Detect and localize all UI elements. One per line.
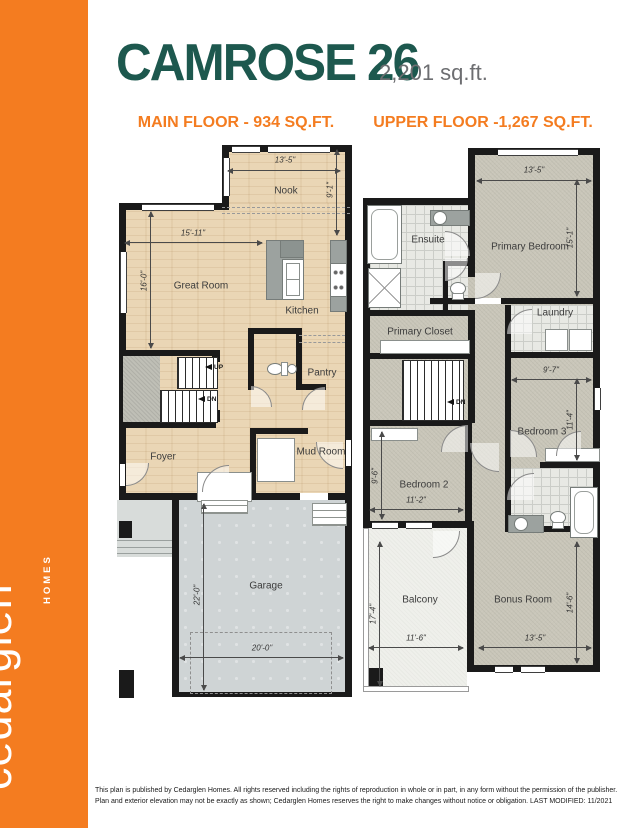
dim-greatroom-width: 15'-11" bbox=[181, 229, 205, 238]
ensuite-shower bbox=[368, 268, 401, 308]
room-label-bonus-room: Bonus Room bbox=[494, 595, 552, 606]
brand-sub-wrap: HOMES bbox=[53, 577, 67, 604]
room-label-balcony: Balcony bbox=[402, 595, 438, 606]
stairs-down-label: DN bbox=[207, 396, 216, 403]
total-sqft: 2,201 sq.ft. bbox=[379, 60, 488, 86]
dryer-icon bbox=[569, 329, 592, 351]
dim-bonus-height: 14'-6" bbox=[566, 593, 575, 613]
room-label-bedroom2: Bedroom 2 bbox=[400, 480, 449, 491]
brand-logo: cedarglen bbox=[22, 575, 68, 790]
dim-balcony-height: 17'-4" bbox=[369, 604, 378, 624]
up-arrow-icon bbox=[205, 364, 212, 370]
down-arrow-icon bbox=[198, 396, 205, 402]
powder-sink-icon bbox=[287, 364, 297, 374]
dim-nook-height: 9'-1" bbox=[326, 182, 335, 198]
page-title: CAMROSE 26 bbox=[116, 33, 418, 93]
room-label-bedroom3: Bedroom 3 bbox=[518, 427, 567, 438]
dim-primary-width: 13'-5" bbox=[524, 166, 544, 175]
room-label-primary-bedroom: Primary Bedroom bbox=[491, 242, 569, 253]
room-label-laundry: Laundry bbox=[537, 308, 573, 319]
brand-sub: HOMES bbox=[42, 554, 53, 604]
main-floor-heading: MAIN FLOOR - 934 SQ.FT. bbox=[121, 114, 351, 132]
dim-bed2-width: 11'-2" bbox=[406, 496, 426, 505]
ensuite-tub bbox=[367, 205, 402, 264]
room-label-pantry: Pantry bbox=[308, 368, 337, 379]
garage-door-zone bbox=[190, 632, 332, 694]
dim-balcony-width: 11'-6" bbox=[406, 634, 426, 643]
dim-garage-height: 22'-0" bbox=[193, 585, 202, 605]
main-floor-plan: UP DN 13'-5" 9'-1" 15'-11" 16'-0" 22'-0"… bbox=[117, 143, 357, 705]
brand-name: cedarglen bbox=[0, 583, 22, 790]
room-label-primary-closet: Primary Closet bbox=[387, 327, 453, 338]
front-steps bbox=[201, 500, 248, 514]
plan-sheet: cedarglen HOMES CAMROSE 26 2,201 sq.ft. … bbox=[0, 0, 640, 828]
dim-bed3-height: 11'-4" bbox=[566, 410, 575, 430]
stairs-down-label: DN bbox=[456, 399, 465, 406]
dim-bonus-width: 13'-5" bbox=[525, 634, 545, 643]
copyright-footer: This plan is published by Cedarglen Home… bbox=[95, 785, 640, 807]
dim-nook-width: 13'-5" bbox=[275, 156, 295, 165]
bath-tub bbox=[570, 487, 598, 538]
down-arrow-icon bbox=[447, 399, 454, 405]
room-label-mud-room: Mud Room bbox=[297, 447, 346, 458]
mudroom-bench bbox=[257, 438, 295, 482]
dim-bed3-width: 9'-7" bbox=[543, 366, 559, 375]
dim-garage-width: 20'-0" bbox=[252, 644, 272, 653]
kitchen-sink bbox=[282, 259, 304, 300]
brand-sidebar: cedarglen HOMES bbox=[0, 0, 88, 828]
garage-steps bbox=[312, 503, 347, 526]
room-label-ensuite: Ensuite bbox=[411, 235, 444, 246]
room-label-nook: Nook bbox=[274, 186, 297, 197]
ensuite-sink-icon bbox=[433, 211, 447, 225]
range-hood bbox=[280, 240, 304, 258]
footer-line-2: Plan and exterior elevation may not be e… bbox=[95, 796, 640, 807]
footer-line-1: This plan is published by Cedarglen Home… bbox=[95, 785, 640, 796]
room-label-garage: Garage bbox=[249, 581, 282, 592]
washer-icon bbox=[545, 329, 568, 351]
dim-greatroom-height: 16'-0" bbox=[140, 271, 149, 291]
room-label-great-room: Great Room bbox=[174, 281, 228, 292]
closet-shelf bbox=[380, 340, 470, 354]
stove-icon bbox=[330, 263, 347, 297]
room-label-foyer: Foyer bbox=[150, 452, 176, 463]
upper-floor-heading: UPPER FLOOR -1,267 SQ.FT. bbox=[368, 114, 598, 132]
upper-floor-plan: DN 13'-5" 15'-1" 9'-7" 11'-4" 11' bbox=[363, 143, 608, 705]
stairs-up-label: UP bbox=[214, 364, 223, 371]
room-label-kitchen: Kitchen bbox=[285, 306, 318, 317]
dim-bed2-height: 9'-6" bbox=[371, 468, 380, 484]
bath-sink-icon bbox=[514, 517, 528, 531]
